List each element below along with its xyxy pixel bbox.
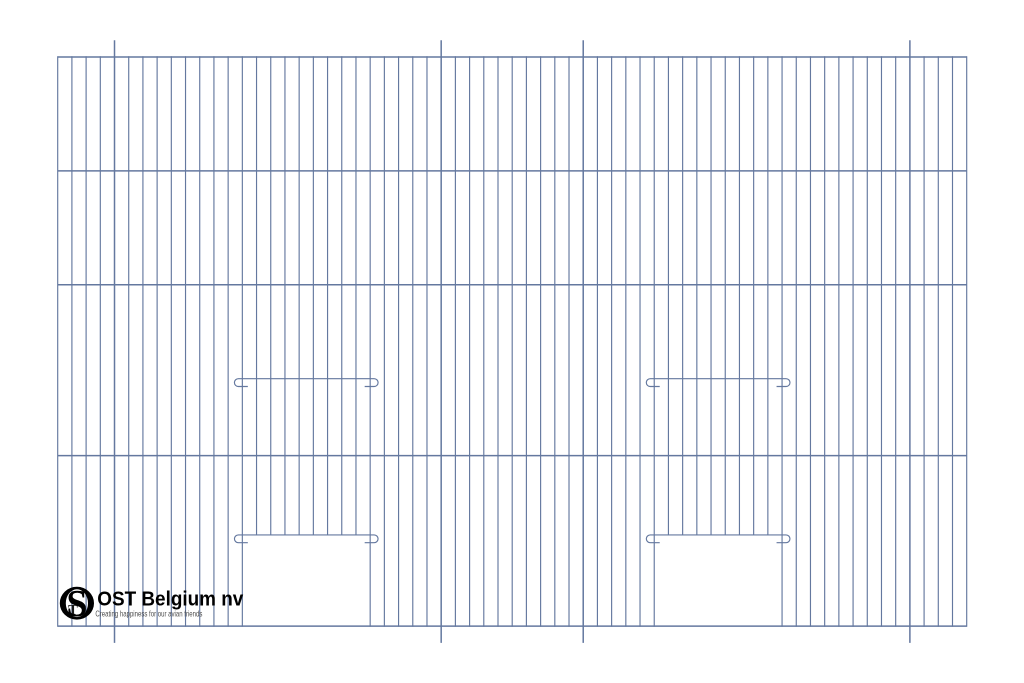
svg-text:S: S — [66, 583, 87, 625]
svg-text:Creating happiness for our avi: Creating happiness for our avian friends — [95, 610, 202, 619]
svg-text:OST Belgium nv: OST Belgium nv — [97, 589, 244, 611]
